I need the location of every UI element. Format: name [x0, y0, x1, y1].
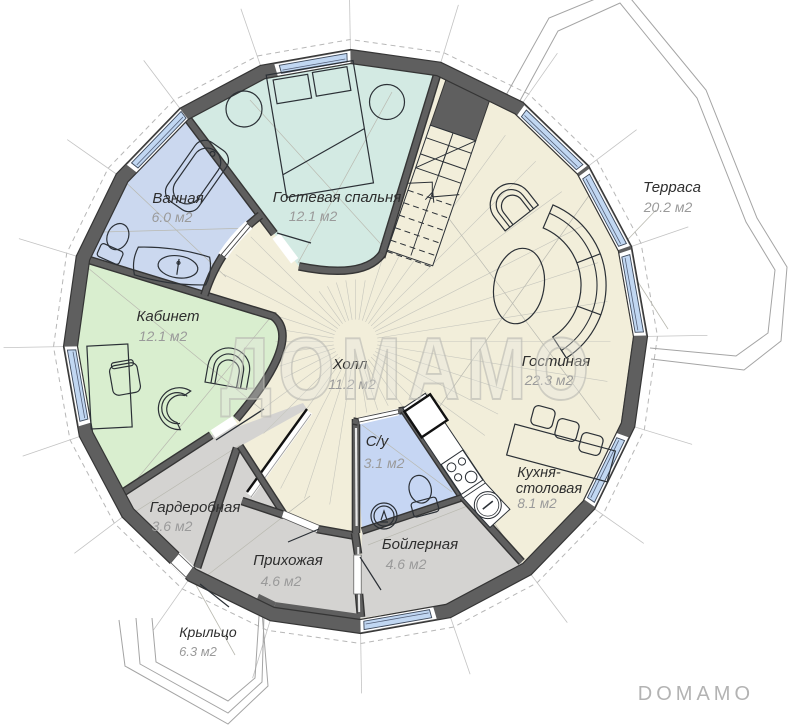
svg-text:DOMAMO: DOMAMO [638, 683, 754, 705]
svg-text:Кабинет: Кабинет [137, 308, 200, 325]
svg-text:столовая: столовая [516, 481, 582, 497]
svg-text:Терраса: Терраса [643, 179, 701, 196]
svg-text:6.0 м2: 6.0 м2 [152, 209, 193, 225]
svg-text:ДОМАМО: ДОМАМО [220, 320, 595, 418]
svg-text:4.6 м2: 4.6 м2 [386, 556, 427, 572]
svg-text:8.1 м2: 8.1 м2 [517, 496, 557, 511]
svg-text:3.6 м2: 3.6 м2 [152, 518, 193, 534]
svg-text:Кухня-: Кухня- [517, 465, 561, 481]
svg-text:Гардеробная: Гардеробная [150, 499, 241, 516]
svg-text:12.1 м2: 12.1 м2 [139, 328, 188, 344]
svg-text:3.1 м2: 3.1 м2 [364, 455, 405, 471]
svg-text:4.6 м2: 4.6 м2 [261, 573, 302, 589]
svg-text:Бойлерная: Бойлерная [382, 536, 458, 553]
svg-text:12.1 м2: 12.1 м2 [289, 208, 338, 224]
svg-text:6.3 м2: 6.3 м2 [179, 644, 218, 659]
svg-text:Крыльцо: Крыльцо [179, 624, 237, 640]
svg-text:С/у: С/у [366, 433, 390, 450]
svg-text:Ванная: Ванная [152, 190, 203, 207]
svg-text:Прихожая: Прихожая [253, 552, 323, 569]
svg-text:20.2 м2: 20.2 м2 [643, 199, 693, 215]
svg-text:Гостевая спальня: Гостевая спальня [273, 189, 402, 206]
